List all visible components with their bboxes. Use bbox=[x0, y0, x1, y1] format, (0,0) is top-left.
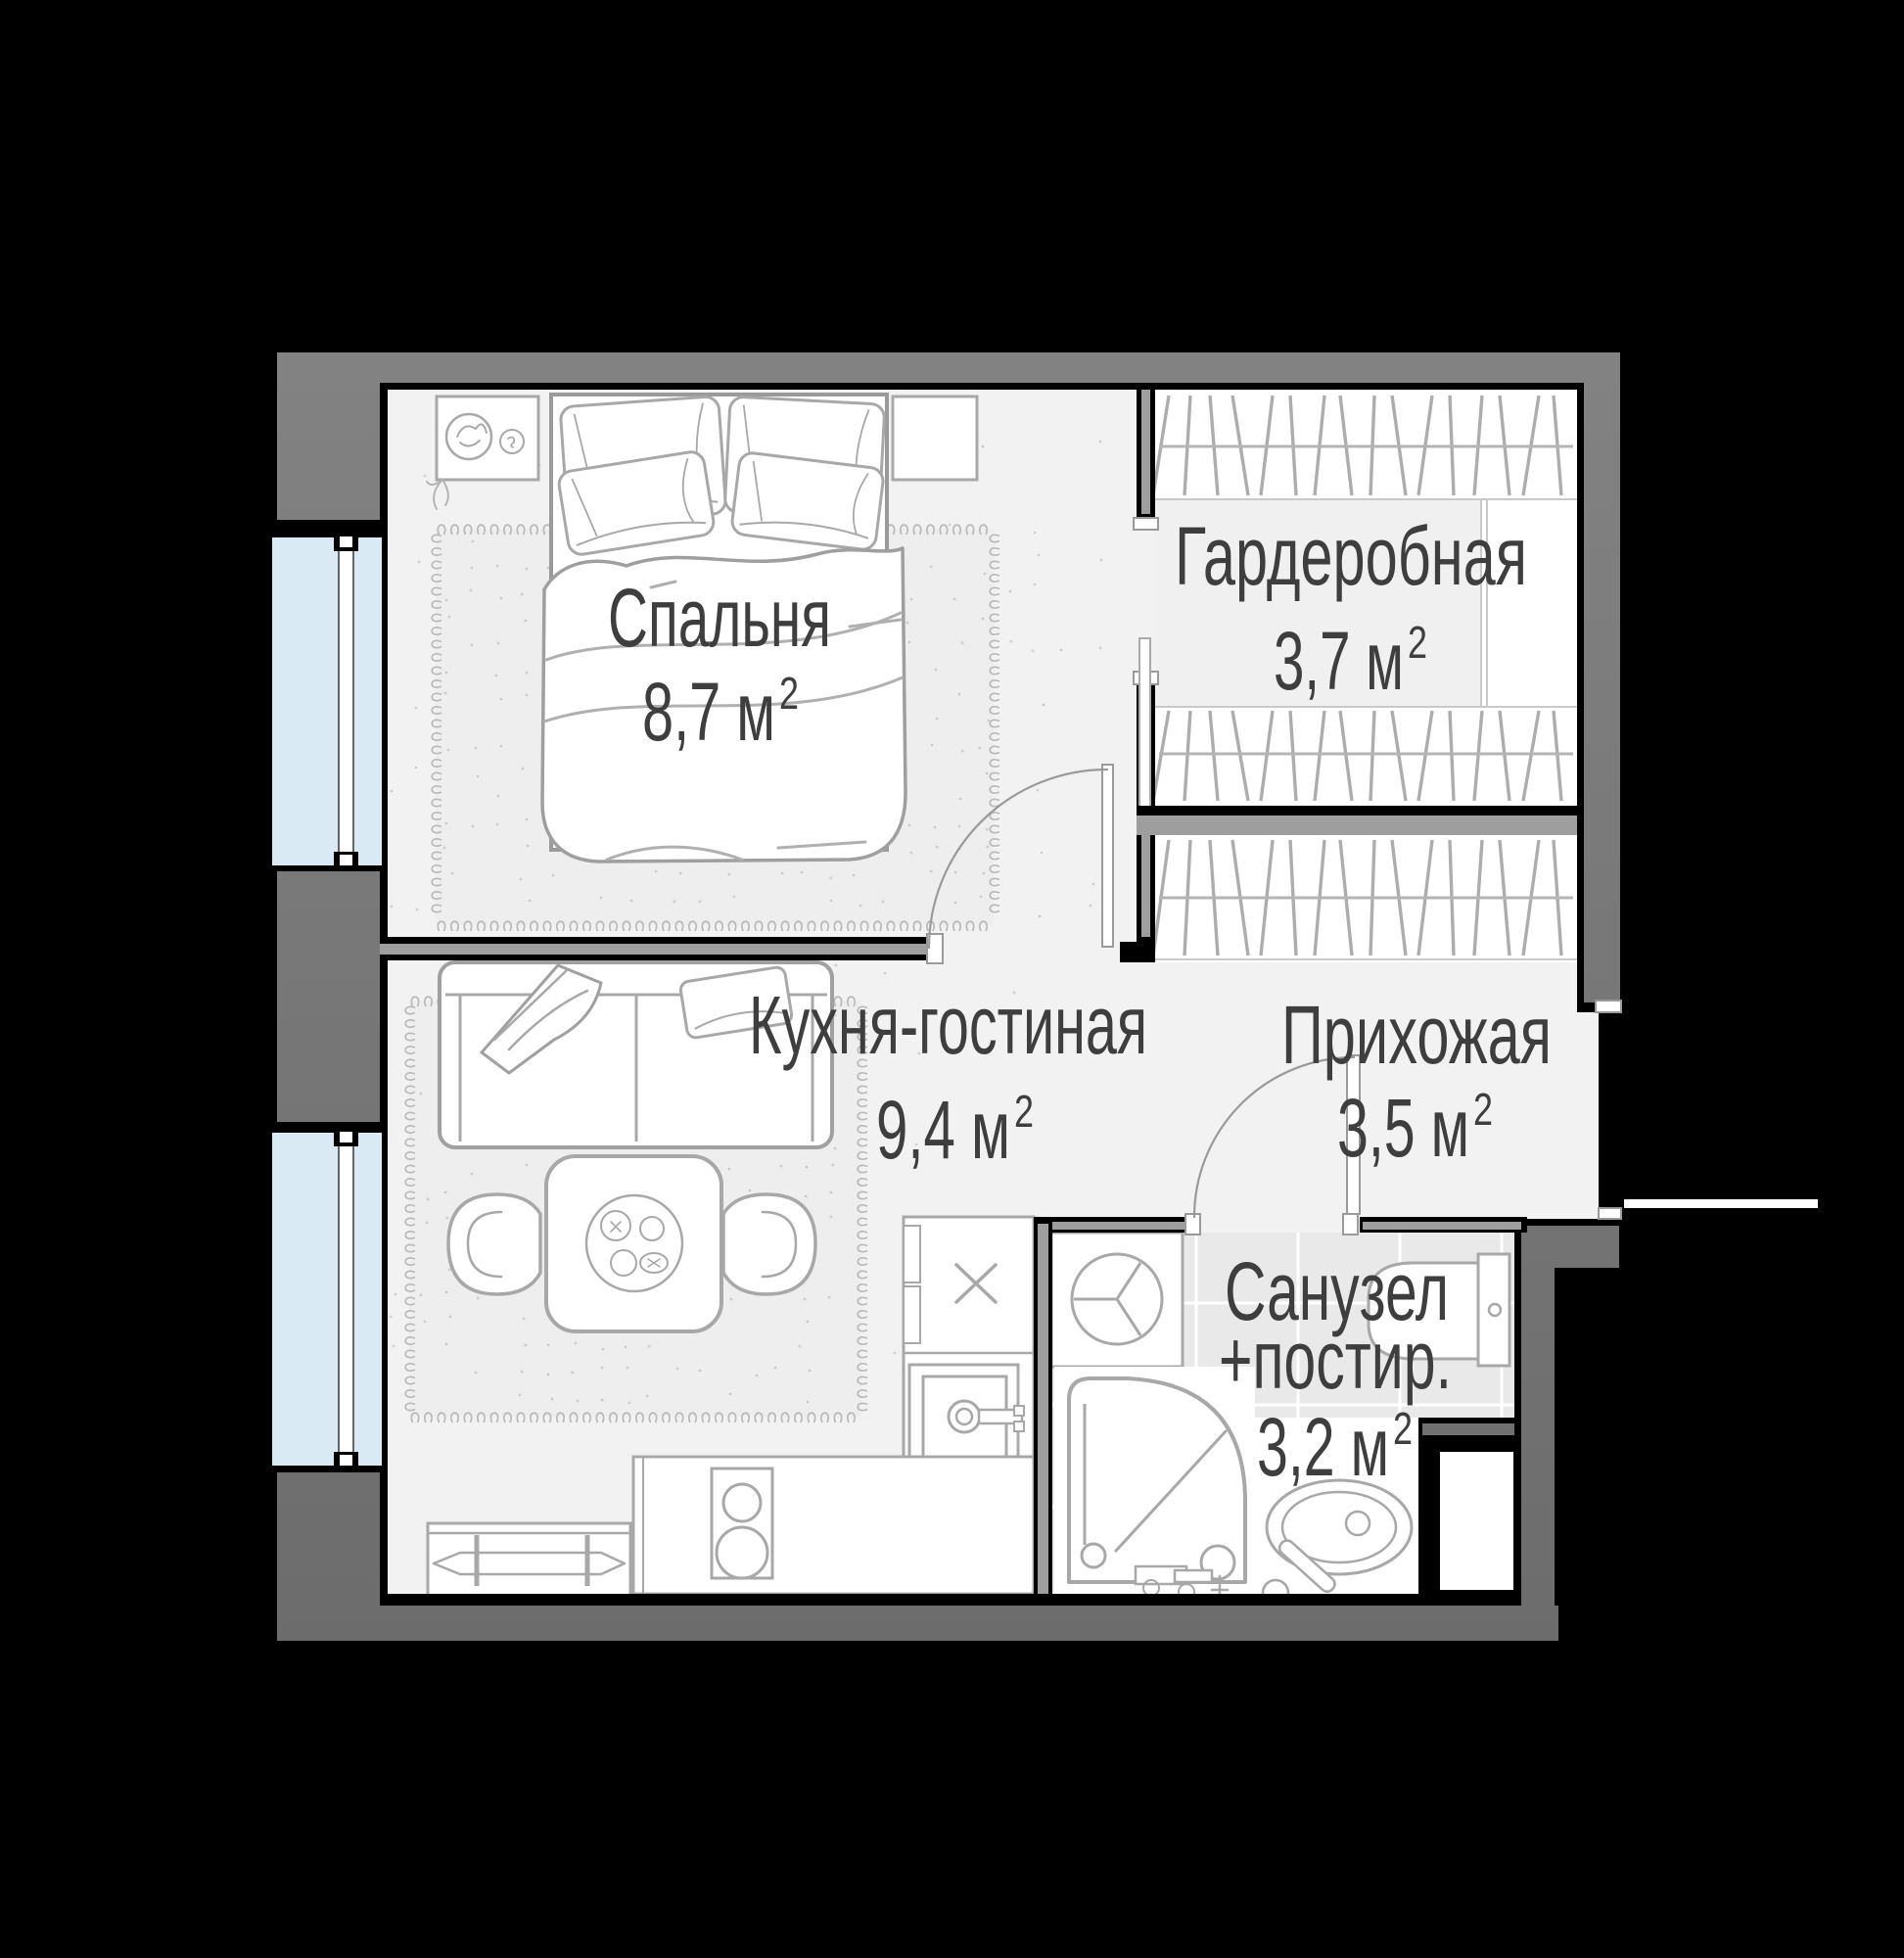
svg-text:3,5 м: 3,5 м bbox=[1337, 1082, 1469, 1174]
svg-text:8,7 м: 8,7 м bbox=[642, 666, 775, 758]
svg-text:Кухня-гостиная: Кухня-гостиная bbox=[749, 979, 1147, 1071]
svg-text:2: 2 bbox=[1473, 1084, 1493, 1135]
svg-text:2: 2 bbox=[1014, 1086, 1034, 1137]
svg-text:2: 2 bbox=[779, 668, 799, 719]
svg-text:9,4 м: 9,4 м bbox=[876, 1084, 1010, 1176]
svg-text:Прихожая: Прихожая bbox=[1281, 989, 1552, 1081]
svg-text:2: 2 bbox=[1393, 1403, 1413, 1454]
svg-text:+постир.: +постир. bbox=[1219, 1314, 1452, 1406]
svg-text:2: 2 bbox=[1408, 617, 1427, 668]
svg-text:3,2 м: 3,2 м bbox=[1257, 1401, 1389, 1493]
svg-text:Гардеробная: Гардеробная bbox=[1175, 510, 1527, 602]
svg-text:3,7 м: 3,7 м bbox=[1274, 615, 1404, 707]
svg-text:Спальня: Спальня bbox=[608, 572, 831, 664]
